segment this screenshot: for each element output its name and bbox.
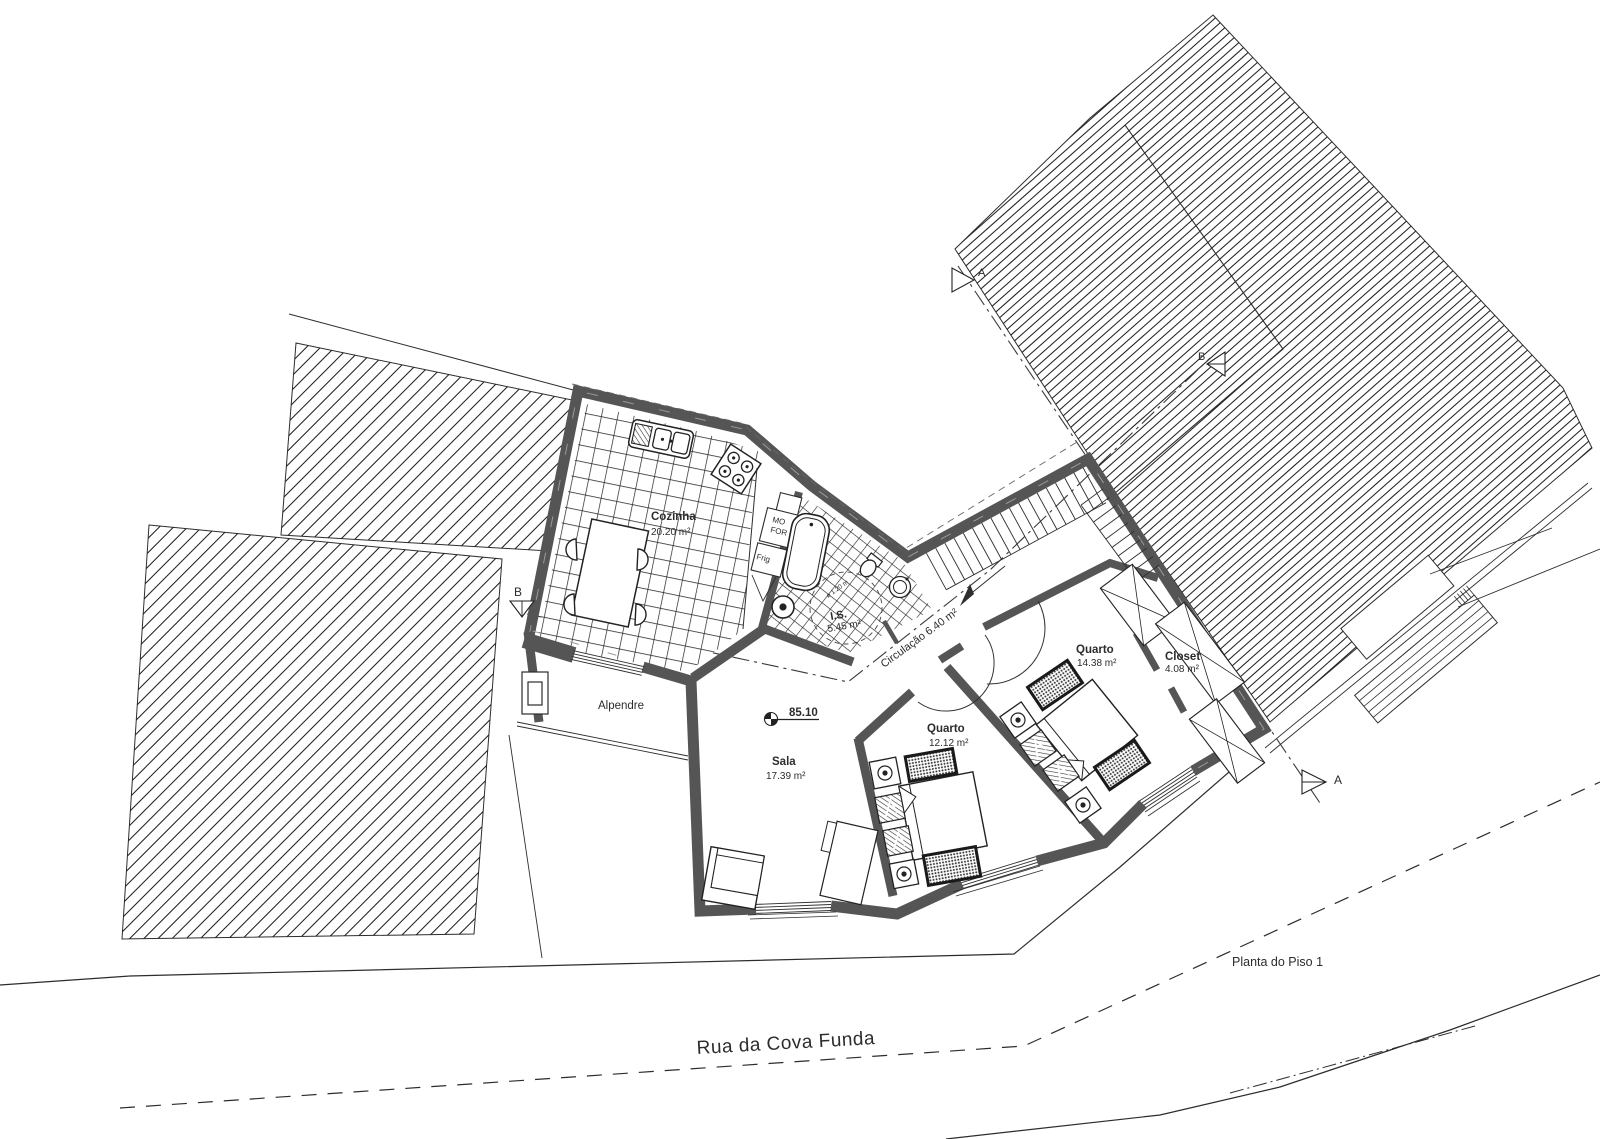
svg-text:20.20 m²: 20.20 m²	[651, 527, 691, 538]
svg-text:A: A	[978, 267, 986, 279]
svg-text:B: B	[1198, 351, 1205, 363]
svg-text:4.08 m²: 4.08 m²	[1165, 664, 1200, 675]
svg-text:A: A	[1334, 773, 1342, 787]
svg-text:14.38 m²: 14.38 m²	[1077, 658, 1117, 669]
svg-text:Sala: Sala	[772, 756, 796, 768]
svg-text:Alpendre: Alpendre	[598, 700, 644, 712]
svg-text:Quarto: Quarto	[1076, 644, 1114, 656]
svg-text:Quarto: Quarto	[927, 723, 965, 735]
svg-text:Closet: Closet	[1165, 651, 1200, 663]
svg-text:Cozinha: Cozinha	[651, 511, 696, 523]
svg-text:B: B	[514, 585, 522, 599]
svg-text:Planta do Piso 1: Planta do Piso 1	[1232, 955, 1323, 969]
svg-text:17.39 m²: 17.39 m²	[766, 771, 806, 782]
svg-text:12.12 m²: 12.12 m²	[929, 738, 969, 749]
svg-text:85.10: 85.10	[789, 707, 818, 719]
